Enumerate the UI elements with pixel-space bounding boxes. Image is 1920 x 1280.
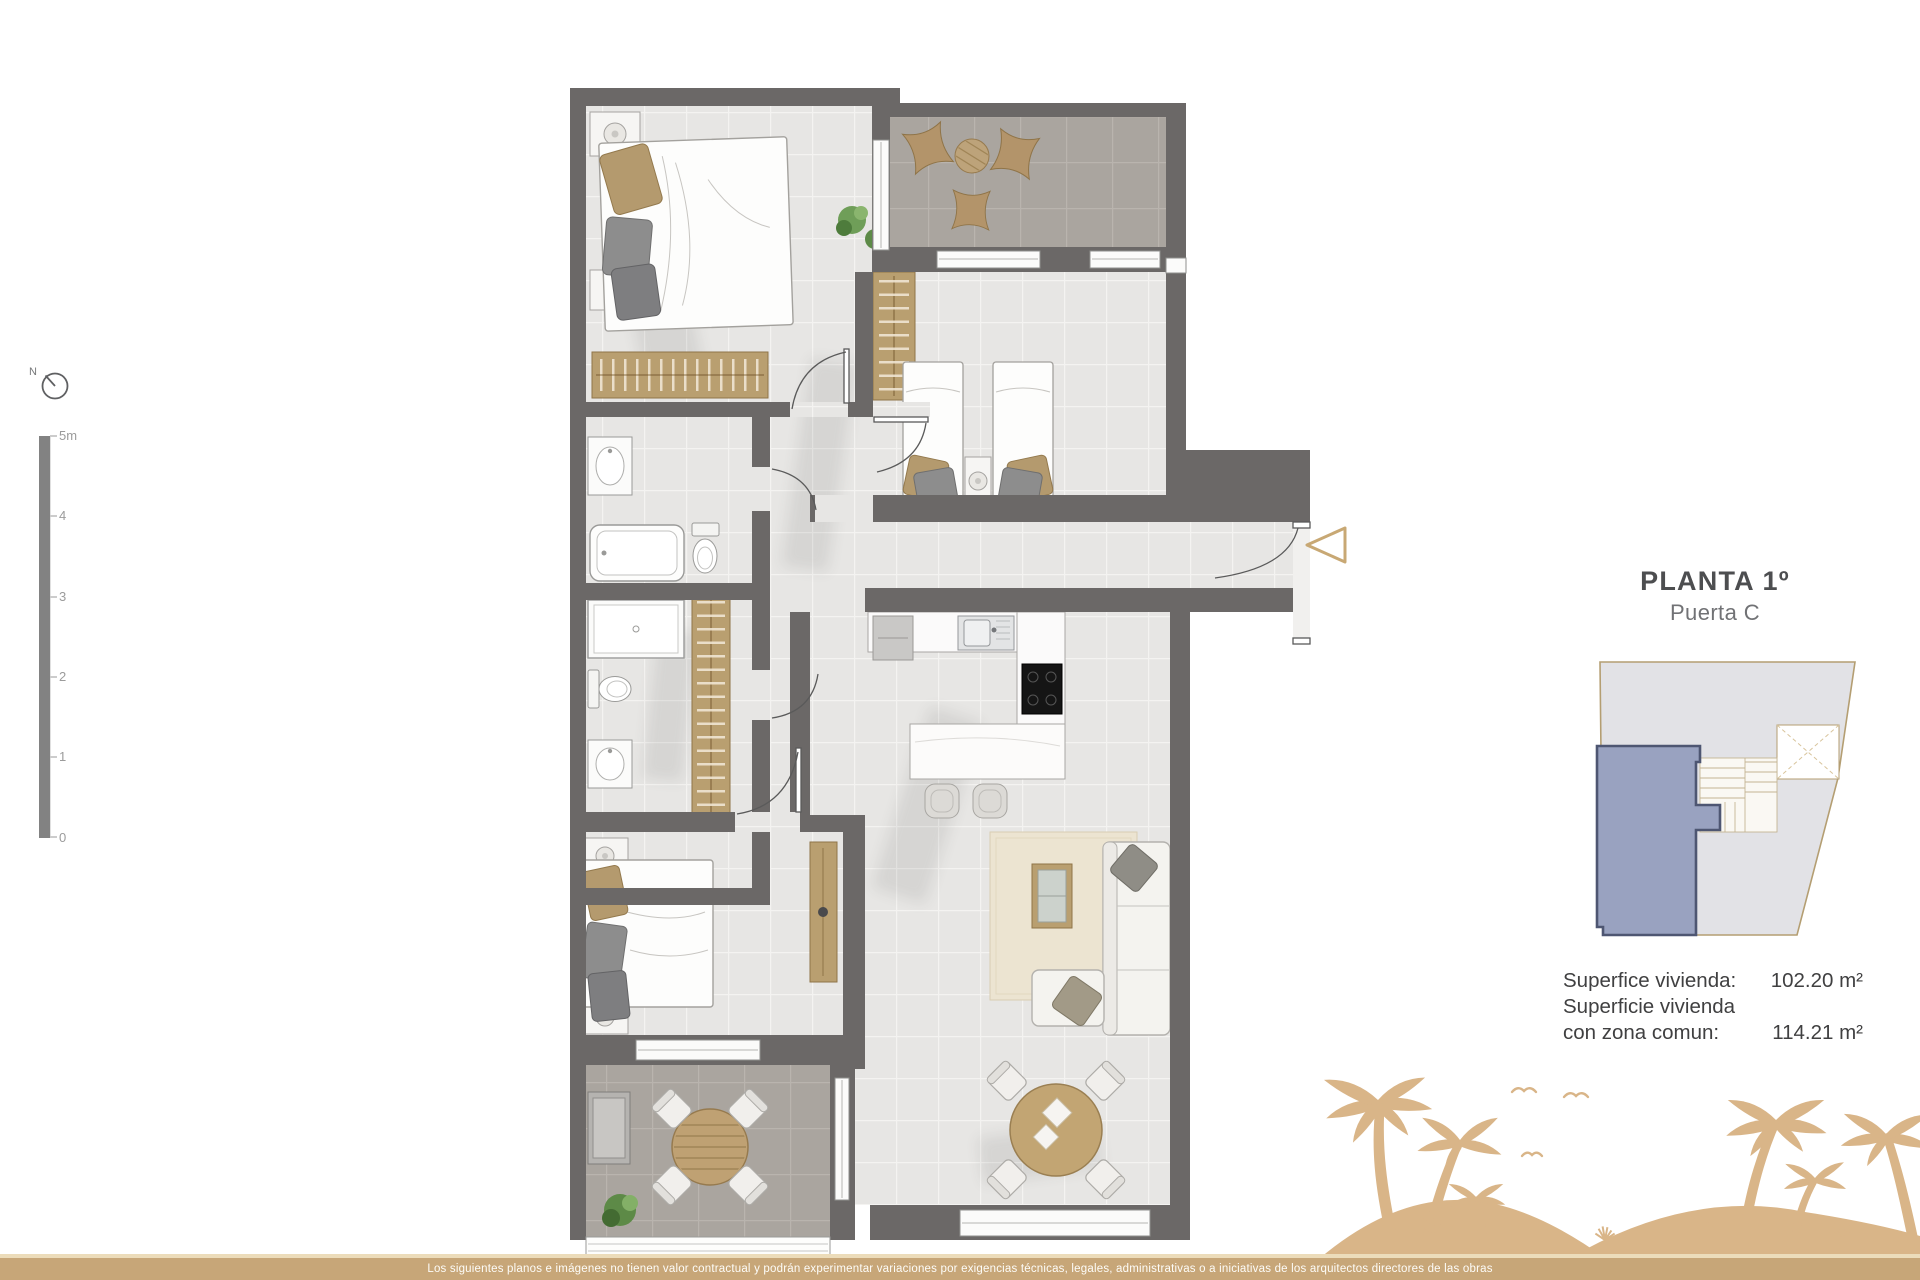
north-compass-icon	[38, 369, 72, 403]
area-label: Superfice vivienda:	[1563, 968, 1771, 994]
entrance-arrow-icon	[1307, 528, 1345, 562]
area-row: Superfice vivienda: 102.20 m²	[1563, 968, 1863, 994]
island	[910, 724, 1065, 779]
scale-label: 0	[59, 830, 66, 845]
scale-tick	[50, 676, 57, 678]
scale-tick	[50, 515, 57, 517]
shower	[588, 600, 684, 658]
palm-silhouettes	[1320, 1076, 1920, 1258]
scale-label: 3	[59, 589, 66, 604]
storage-unit	[588, 1092, 630, 1164]
bathtub	[590, 525, 684, 581]
double-bed	[580, 860, 713, 1022]
palm-beach-decoration	[1180, 1040, 1920, 1258]
toilet	[692, 523, 719, 573]
single-bed	[993, 362, 1054, 511]
scale-tick	[50, 596, 57, 598]
scale-label: 4	[59, 508, 66, 523]
scale-bar	[39, 436, 50, 838]
double-bed	[597, 137, 793, 331]
hall-wardrobe	[692, 593, 730, 822]
coffee-table	[1032, 864, 1072, 928]
page-subtitle: Puerta C	[1558, 600, 1872, 626]
scale-label: 5m	[59, 428, 77, 443]
scale-tick	[50, 836, 57, 838]
cooktop	[1022, 664, 1062, 714]
key-plan	[1570, 650, 1900, 980]
footer-bar: Los siguientes planos e imágenes no tien…	[0, 1258, 1920, 1280]
brochure-page: { "panel": { "title": "PLANTA 1º", "subt…	[0, 0, 1920, 1280]
wardrobe	[592, 352, 768, 398]
stool	[973, 784, 1007, 818]
scale-label: 2	[59, 669, 66, 684]
area-value: 102.20 m²	[1771, 968, 1863, 994]
north-label: N	[29, 366, 37, 378]
area-block: Superfice vivienda: 102.20 m² Superficie…	[1563, 968, 1863, 1046]
scale-tick	[50, 435, 57, 437]
single-bed	[902, 362, 963, 511]
area-row: Superficie vivienda con zona comun: 114.…	[1563, 994, 1863, 1046]
page-title: PLANTA 1º	[1558, 566, 1872, 597]
scale-tick	[50, 756, 57, 758]
title-block: PLANTA 1º Puerta C	[1558, 566, 1872, 626]
bird-icons	[1512, 1088, 1588, 1156]
lightwell	[1777, 725, 1839, 779]
scale-bar-line	[50, 436, 51, 838]
area-label: Superficie vivienda con zona comun:	[1563, 994, 1772, 1046]
stool	[925, 784, 959, 818]
scale-label: 1	[59, 749, 66, 764]
footer-disclaimer: Los siguientes planos e imágenes no tien…	[0, 1258, 1920, 1280]
tv-console	[810, 842, 837, 982]
kitchen-sink	[958, 616, 1014, 650]
master-bedroom	[590, 112, 793, 398]
